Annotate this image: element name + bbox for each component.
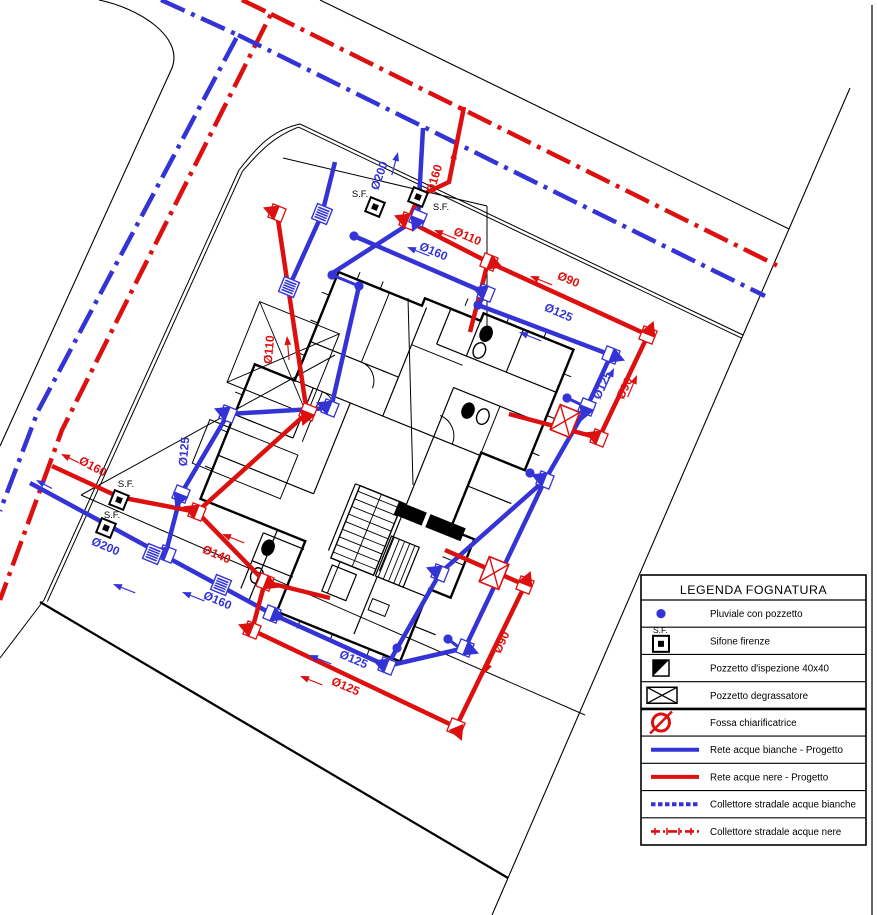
svg-text:Ø125: Ø125	[176, 436, 193, 467]
svg-text:LEGENDA FOGNATURA: LEGENDA FOGNATURA	[680, 583, 828, 597]
svg-text:Rete acque bianche - Progetto: Rete acque bianche - Progetto	[710, 745, 843, 756]
svg-text:S.F.: S.F.	[104, 510, 120, 521]
svg-text:Pluviale con pozzetto: Pluviale con pozzetto	[710, 609, 803, 620]
svg-text:Rete acque nere - Progetto: Rete acque nere - Progetto	[710, 772, 829, 783]
svg-text:S.F.: S.F.	[653, 625, 668, 635]
svg-text:Sifone firenze: Sifone firenze	[710, 636, 770, 647]
svg-text:Fossa chiarificatrice: Fossa chiarificatrice	[710, 718, 797, 729]
svg-text:S.F.: S.F.	[433, 202, 449, 213]
svg-text:Collettore stradale acque bian: Collettore stradale acque bianche	[710, 800, 857, 811]
svg-text:Ø110: Ø110	[261, 334, 277, 364]
svg-text:Pozzetto d'ispezione 40x40: Pozzetto d'ispezione 40x40	[710, 664, 830, 675]
svg-text:Collettore stradale acque nere: Collettore stradale acque nere	[710, 827, 842, 838]
svg-text:Pozzetto degrassatore: Pozzetto degrassatore	[710, 691, 809, 702]
svg-text:S.F.: S.F.	[352, 189, 368, 200]
svg-text:S.F.: S.F.	[118, 479, 134, 490]
